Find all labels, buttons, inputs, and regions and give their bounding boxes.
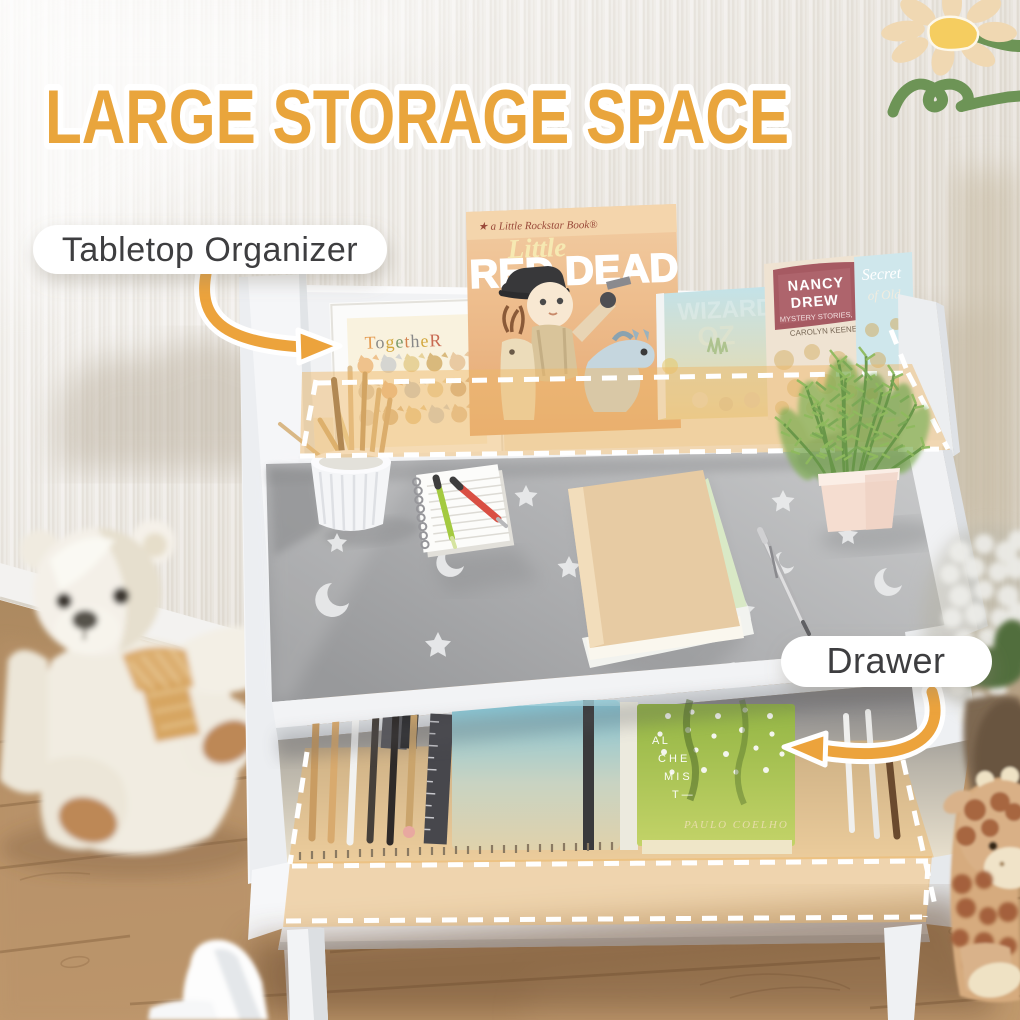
svg-text:DREW: DREW: [790, 293, 839, 312]
svg-text:TogetheR: TogetheR: [364, 330, 442, 353]
svg-text:Secret: Secret: [861, 265, 902, 284]
svg-text:A L: A L: [652, 735, 668, 747]
svg-text:M I S: M I S: [664, 771, 690, 783]
svg-text:Tabletop Organizer: Tabletop Organizer: [62, 231, 358, 269]
svg-text:★ a Little Rockstar Book®: ★ a Little Rockstar Book®: [478, 219, 598, 233]
svg-text:PAULO COELHO: PAULO COELHO: [683, 819, 789, 831]
svg-text:T —: T —: [672, 789, 693, 801]
svg-text:LARGE STORAGE SPACE: LARGE STORAGE SPACE: [45, 75, 789, 160]
svg-text:of Old: of Old: [867, 286, 901, 303]
svg-text:RED DEAD: RED DEAD: [469, 246, 679, 297]
svg-text:C H E: C H E: [658, 753, 687, 765]
svg-text:Drawer: Drawer: [826, 640, 945, 681]
